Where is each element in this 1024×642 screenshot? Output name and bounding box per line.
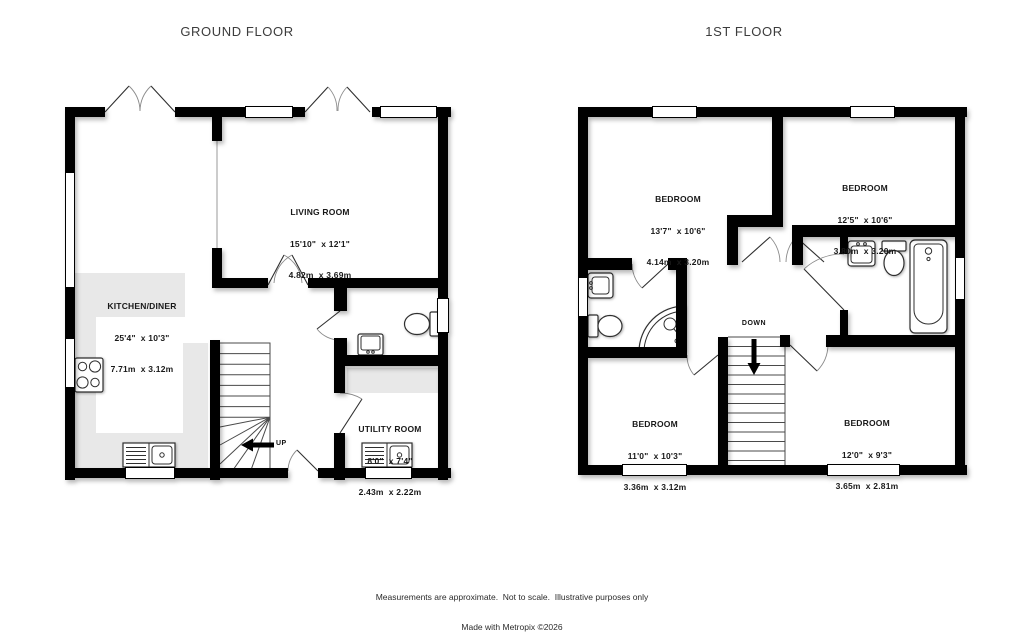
wall bbox=[334, 433, 345, 480]
wall bbox=[347, 278, 438, 288]
wall bbox=[955, 300, 965, 475]
wall bbox=[438, 333, 448, 480]
room-name: BEDROOM bbox=[624, 419, 687, 430]
wall bbox=[175, 468, 288, 478]
room-size-imperial: 15'10" x 12'1" bbox=[289, 239, 352, 250]
wall bbox=[578, 317, 588, 475]
window bbox=[65, 338, 75, 388]
window bbox=[245, 106, 293, 118]
wall bbox=[578, 107, 588, 277]
room-name: BEDROOM bbox=[834, 183, 897, 194]
room-name: UTILITY ROOM bbox=[358, 424, 421, 435]
wall bbox=[293, 107, 305, 117]
wall bbox=[438, 107, 448, 298]
first-floor-plan: BEDROOM 13'7" x 10'6" 4.14m x 3.20m BEDR… bbox=[578, 105, 967, 477]
room-size-imperial: 25'4" x 10'3" bbox=[107, 333, 176, 344]
window bbox=[955, 257, 965, 300]
wall bbox=[826, 335, 955, 347]
wall bbox=[578, 347, 687, 358]
window bbox=[437, 298, 449, 333]
wall bbox=[372, 107, 380, 117]
room-size-imperial: 8'0" x 7'4" bbox=[358, 456, 421, 467]
room-size-metric: 4.14m x 3.20m bbox=[647, 257, 710, 268]
wall bbox=[772, 117, 783, 227]
wall bbox=[727, 227, 738, 265]
room-label-bedroom-3: BEDROOM 11'0" x 10'3" 3.36m x 3.12m bbox=[624, 398, 687, 514]
room-size-imperial: 13'7" x 10'6" bbox=[647, 226, 710, 237]
room-size-imperial: 11'0" x 10'3" bbox=[624, 451, 687, 462]
wall bbox=[334, 366, 345, 393]
wall bbox=[212, 278, 268, 288]
room-label-utility-room: UTILITY ROOM 8'0" x 7'4" 2.43m x 2.22m bbox=[358, 403, 421, 519]
room-label-bedroom-2: BEDROOM 12'5" x 10'6" 3.80m x 3.20m bbox=[834, 162, 897, 278]
wall bbox=[212, 117, 222, 141]
room-name: BEDROOM bbox=[836, 418, 899, 429]
stairs-up-label: UP bbox=[276, 440, 287, 447]
room-size-imperial: 12'5" x 10'6" bbox=[834, 215, 897, 226]
wall bbox=[175, 107, 245, 117]
window bbox=[578, 277, 588, 317]
ground-floor-plan: LIVING ROOM 15'10" x 12'1" 4.82m x 3.69m… bbox=[65, 103, 451, 481]
room-size-metric: 2.43m x 2.22m bbox=[358, 487, 421, 498]
wall bbox=[65, 468, 125, 478]
disclaimer-line1: Measurements are approximate. Not to sca… bbox=[376, 592, 649, 602]
wall bbox=[210, 340, 220, 480]
wall bbox=[65, 388, 75, 480]
room-name: BEDROOM bbox=[647, 194, 710, 205]
room-size-metric: 3.65m x 2.81m bbox=[836, 481, 899, 492]
room-label-bedroom-4: BEDROOM 12'0" x 9'3" 3.65m x 2.81m bbox=[836, 397, 899, 513]
wall bbox=[588, 258, 632, 270]
wall bbox=[578, 107, 652, 117]
wall bbox=[65, 288, 75, 338]
wall bbox=[727, 215, 772, 227]
window bbox=[65, 172, 75, 288]
wall bbox=[955, 107, 965, 257]
wall bbox=[697, 107, 850, 117]
wall bbox=[780, 335, 790, 347]
wall bbox=[718, 337, 728, 470]
wall bbox=[792, 237, 803, 265]
wall bbox=[65, 107, 75, 172]
room-size-metric: 7.71m x 3.12m bbox=[107, 364, 176, 375]
room-size-imperial: 12'0" x 9'3" bbox=[836, 450, 899, 461]
window bbox=[125, 467, 175, 479]
window bbox=[652, 106, 697, 118]
wall bbox=[578, 465, 622, 475]
room-label-kitchen-diner: KITCHEN/DINER 25'4" x 10'3" 7.71m x 3.12… bbox=[107, 280, 176, 396]
room-size-metric: 3.80m x 3.20m bbox=[834, 246, 897, 257]
room-label-living-room: LIVING ROOM 15'10" x 12'1" 4.82m x 3.69m bbox=[289, 186, 352, 302]
window bbox=[380, 106, 437, 118]
room-label-bedroom-1: BEDROOM 13'7" x 10'6" 4.14m x 3.20m bbox=[647, 173, 710, 289]
wall bbox=[334, 355, 438, 366]
first-floor-title: 1ST FLOOR bbox=[705, 24, 782, 39]
room-name: KITCHEN/DINER bbox=[107, 301, 176, 312]
disclaimer: Measurements are approximate. Not to sca… bbox=[376, 572, 649, 642]
ground-floor-title: GROUND FLOOR bbox=[180, 24, 293, 39]
room-name: LIVING ROOM bbox=[289, 207, 352, 218]
room-size-metric: 3.36m x 3.12m bbox=[624, 482, 687, 493]
wall bbox=[687, 465, 827, 475]
window bbox=[850, 106, 895, 118]
stairs-down-label: DOWN bbox=[742, 320, 766, 327]
room-size-metric: 4.82m x 3.69m bbox=[289, 270, 352, 281]
